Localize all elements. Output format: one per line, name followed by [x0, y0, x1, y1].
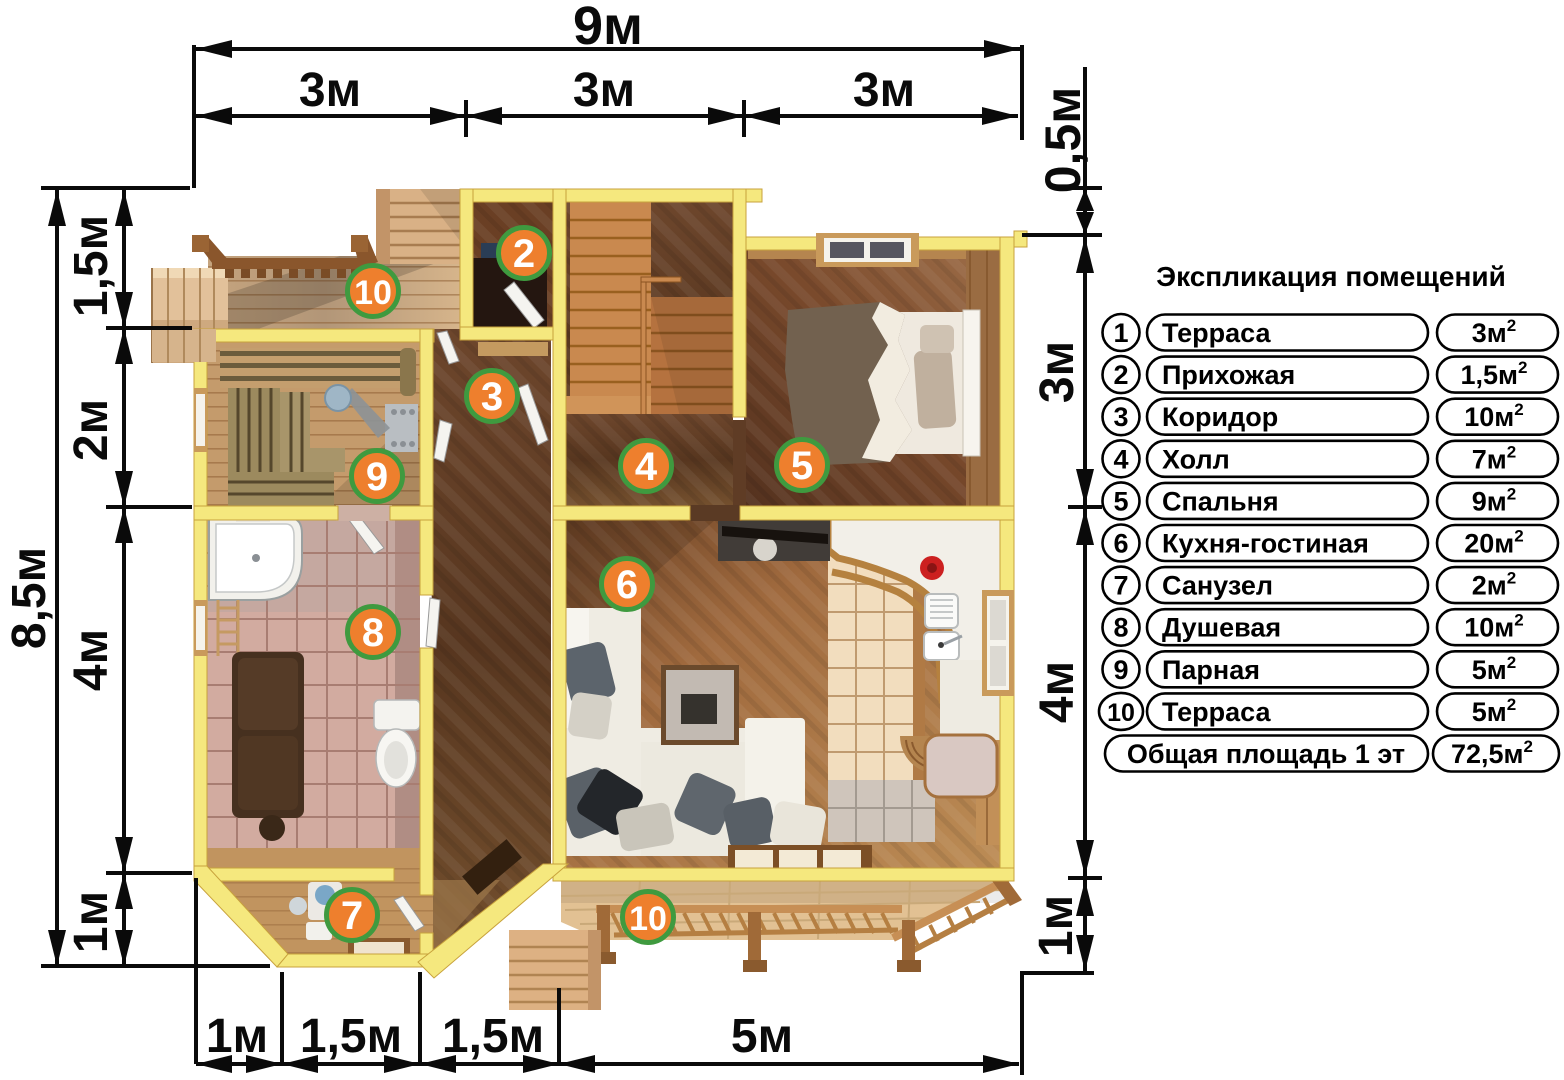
svg-text:Душевая: Душевая — [1162, 613, 1281, 643]
svg-text:4: 4 — [1113, 444, 1128, 474]
svg-text:2: 2 — [1113, 360, 1128, 390]
svg-text:Терраса: Терраса — [1162, 318, 1272, 348]
svg-text:3м: 3м — [573, 64, 635, 117]
svg-text:9м: 9м — [573, 0, 643, 56]
svg-text:2м: 2м — [65, 399, 118, 461]
svg-text:9: 9 — [366, 455, 388, 499]
svg-text:1м: 1м — [1030, 895, 1083, 957]
svg-text:10: 10 — [629, 900, 667, 938]
svg-text:Терраса: Терраса — [1162, 697, 1272, 727]
svg-text:1м: 1м — [206, 1010, 268, 1063]
svg-text:Спальня: Спальня — [1162, 486, 1279, 516]
svg-text:5м: 5м — [731, 1010, 793, 1063]
svg-text:3: 3 — [481, 375, 503, 419]
svg-text:Общая площадь 1 эт: Общая площадь 1 эт — [1127, 739, 1405, 769]
svg-text:Экспликация помещений: Экспликация помещений — [1156, 261, 1506, 292]
svg-text:3м: 3м — [1031, 341, 1084, 403]
svg-text:8,5м: 8,5м — [3, 547, 56, 649]
svg-text:6: 6 — [1113, 529, 1128, 559]
svg-text:1,5м: 1,5м — [442, 1010, 544, 1063]
svg-text:1м: 1м — [65, 891, 118, 953]
svg-text:10: 10 — [1107, 699, 1135, 727]
svg-text:Коридор: Коридор — [1162, 402, 1278, 432]
svg-text:1,5м: 1,5м — [65, 215, 118, 317]
svg-text:Санузел: Санузел — [1162, 571, 1273, 601]
svg-text:1,5м2: 1,5м2 — [1461, 358, 1528, 390]
svg-text:4м: 4м — [65, 629, 118, 691]
svg-text:8: 8 — [362, 611, 384, 655]
svg-text:3м: 3м — [299, 64, 361, 117]
svg-text:9: 9 — [1113, 655, 1128, 685]
svg-text:6: 6 — [616, 563, 638, 607]
svg-text:72,5м2: 72,5м2 — [1451, 737, 1533, 769]
svg-text:Холл: Холл — [1162, 444, 1230, 474]
svg-text:1,5м: 1,5м — [300, 1010, 402, 1063]
svg-text:7: 7 — [341, 894, 363, 938]
svg-text:8: 8 — [1113, 613, 1128, 643]
svg-text:5: 5 — [1113, 486, 1128, 516]
svg-text:10: 10 — [354, 274, 392, 312]
svg-text:2: 2 — [513, 232, 535, 276]
svg-text:0,5м: 0,5м — [1035, 87, 1091, 194]
svg-text:4м: 4м — [1031, 661, 1084, 723]
svg-text:Прихожая: Прихожая — [1162, 360, 1295, 390]
svg-text:3: 3 — [1113, 402, 1128, 432]
svg-text:3м: 3м — [853, 64, 915, 117]
svg-text:Парная: Парная — [1162, 655, 1260, 685]
svg-text:1: 1 — [1113, 318, 1128, 348]
svg-text:4: 4 — [635, 445, 658, 489]
svg-text:5: 5 — [791, 444, 813, 488]
svg-text:7: 7 — [1113, 571, 1128, 601]
svg-text:Кухня-гостиная: Кухня-гостиная — [1162, 529, 1369, 559]
